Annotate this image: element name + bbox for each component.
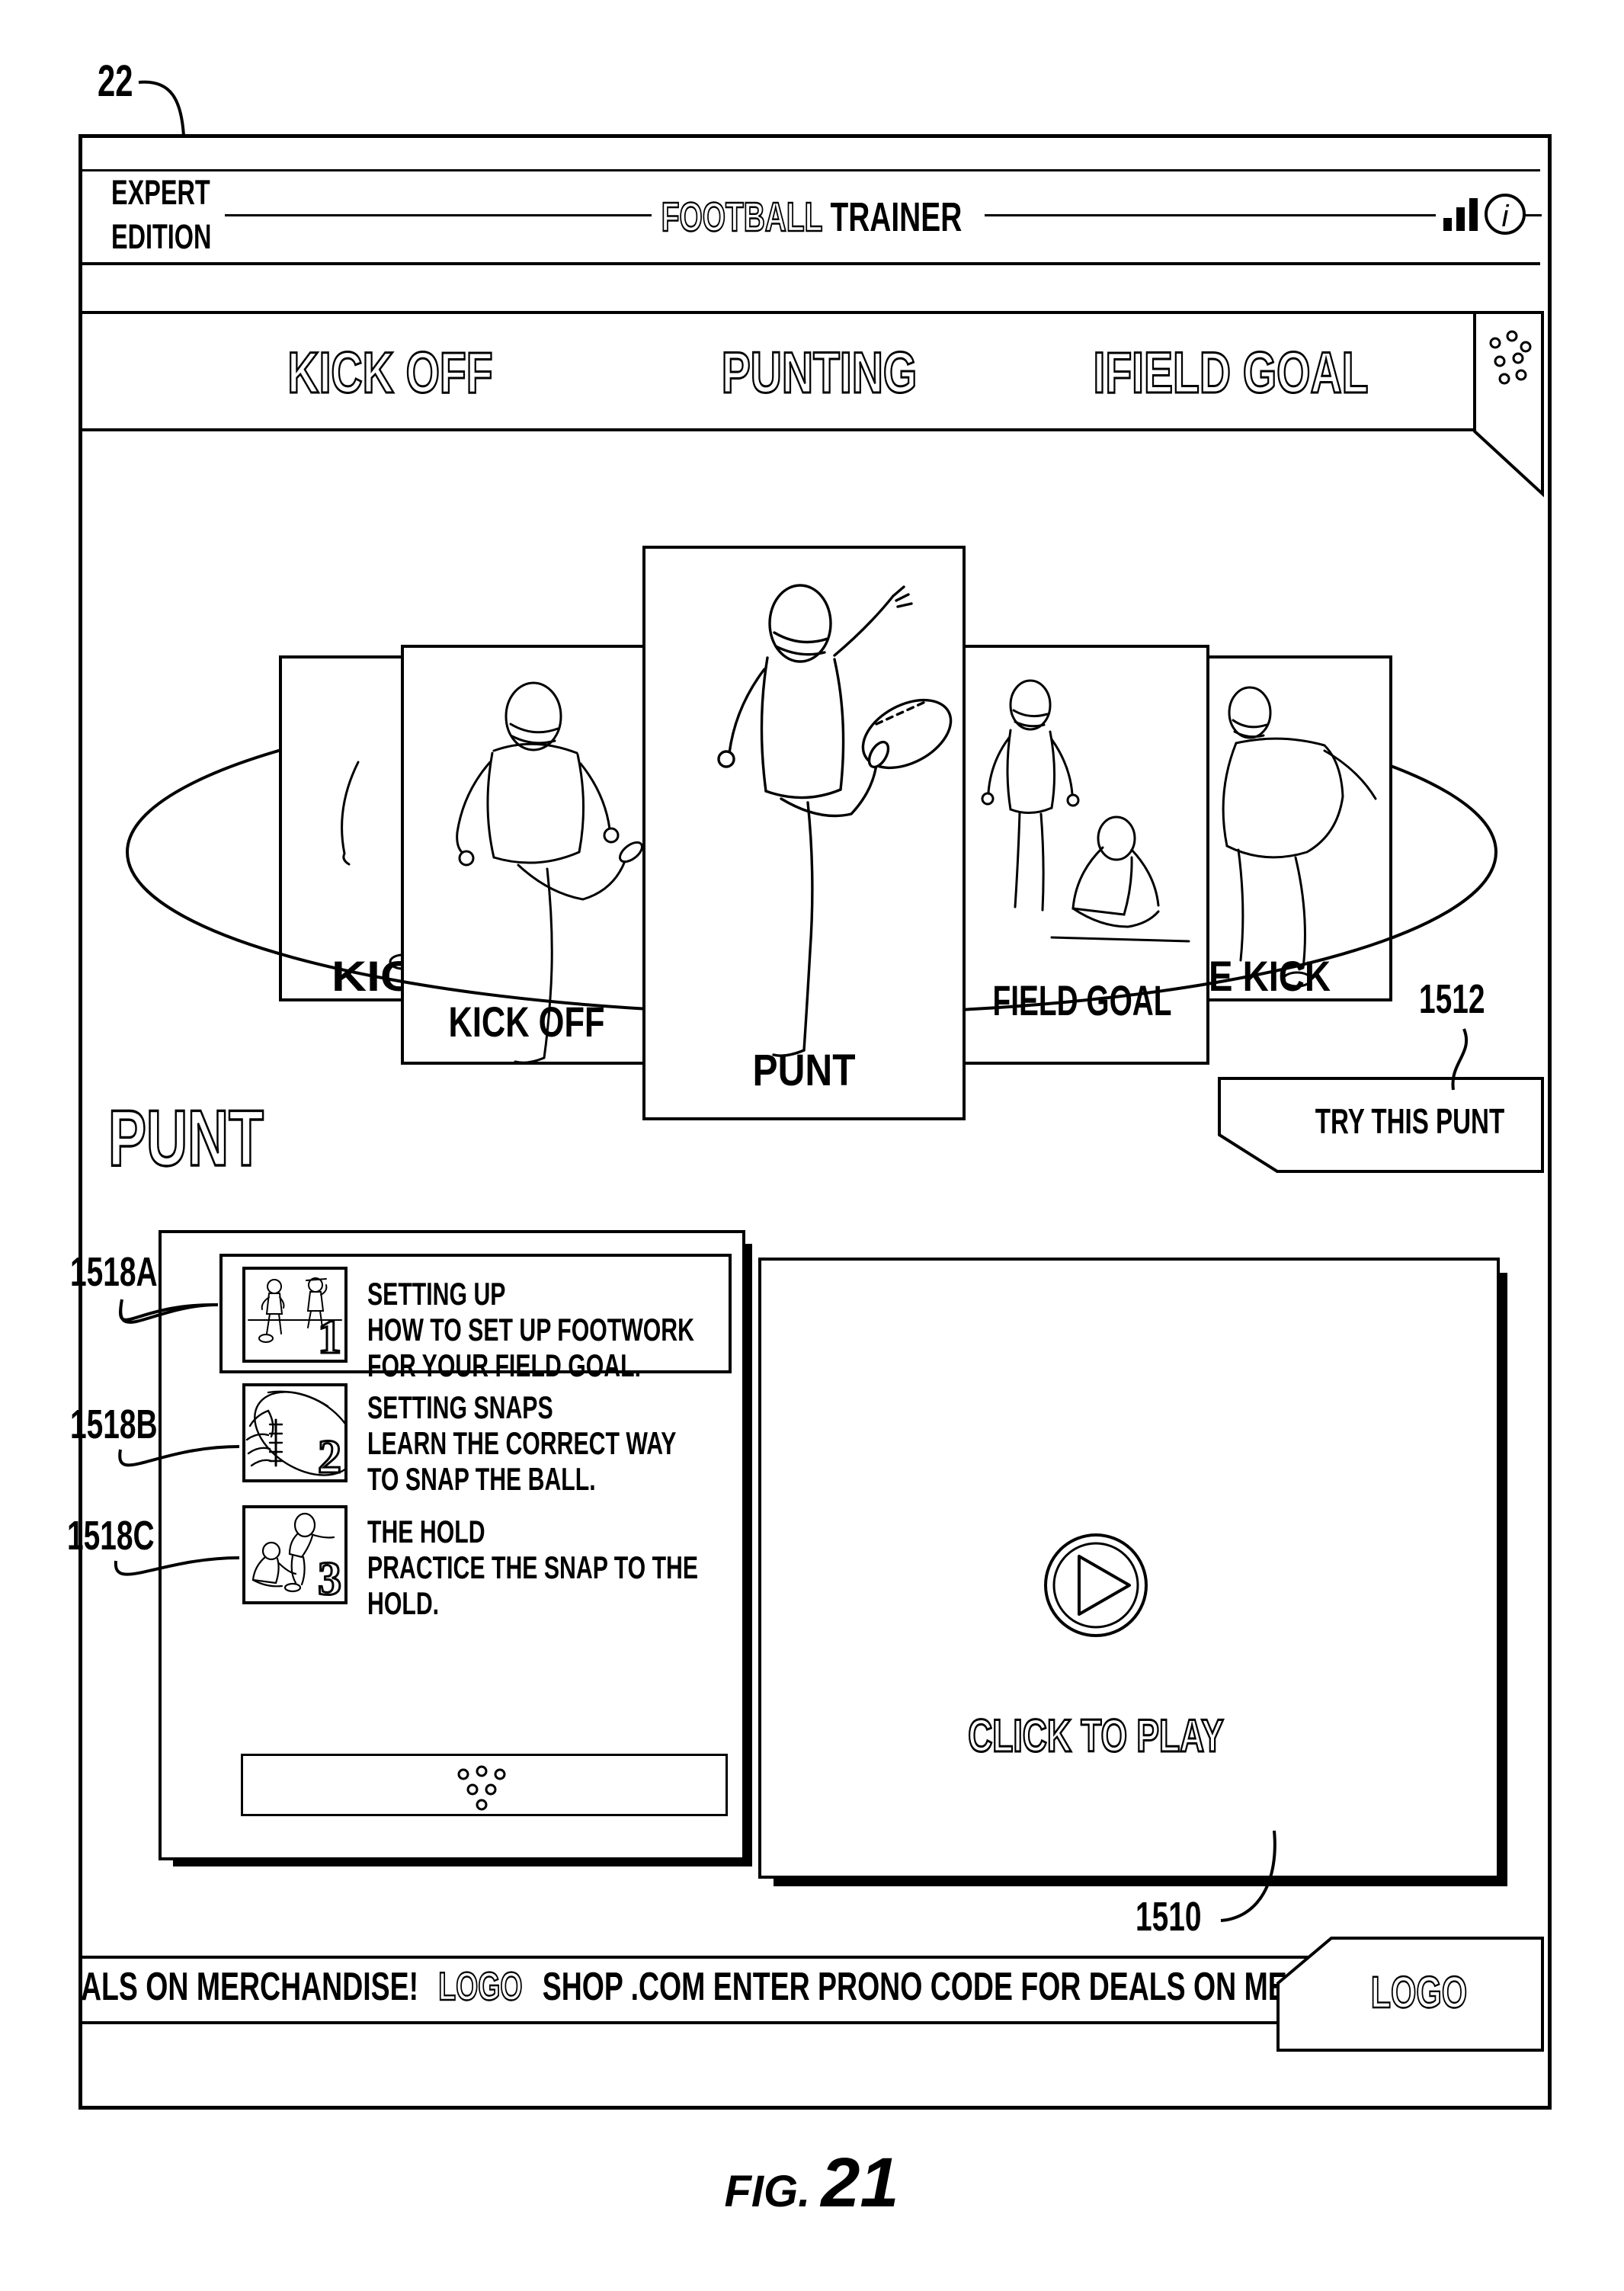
step-2-ref-label: 1518B xyxy=(70,1404,191,1445)
step-3-ref-leader xyxy=(116,1558,239,1575)
step-1-ref-leader xyxy=(120,1299,218,1322)
logo-badge-label: LOGO xyxy=(1371,1971,1467,2015)
video-ref-label: 1510 xyxy=(1136,1896,1227,1937)
step-1-ref-label: 1518A xyxy=(70,1251,191,1293)
carousel-card-kick-off[interactable]: KICK OFF xyxy=(402,646,652,1063)
svg-text:i: i xyxy=(1502,200,1510,233)
play-icon[interactable] xyxy=(1046,1535,1146,1636)
try-button-ref-label: 1512 xyxy=(1419,979,1510,1020)
figure-art-layer: i KIC xyxy=(0,0,1624,2291)
more-dots-icon xyxy=(459,1767,504,1809)
carousel-card-label: E KICK xyxy=(1209,952,1331,1000)
signal-bars-icon xyxy=(1443,198,1478,231)
try-this-punt-button[interactable] xyxy=(1219,1029,1542,1171)
info-icon[interactable]: i xyxy=(1486,195,1524,233)
video-ref-leader xyxy=(1221,1831,1275,1921)
carousel-card-punt[interactable]: PUNT xyxy=(644,547,964,1119)
try-this-punt-label: TRY THIS PUNT xyxy=(1315,1104,1504,1139)
carousel-card-label: PUNT xyxy=(753,1046,856,1095)
step-2-ref-leader xyxy=(120,1447,239,1465)
frame-ref-label: 22 xyxy=(98,61,147,102)
step-3-ref-label: 1518C xyxy=(67,1515,188,1556)
patent-figure-football-trainer: EXPERT EDITION FOOTBALL TRAINER KICK OFF… xyxy=(0,0,1624,2291)
